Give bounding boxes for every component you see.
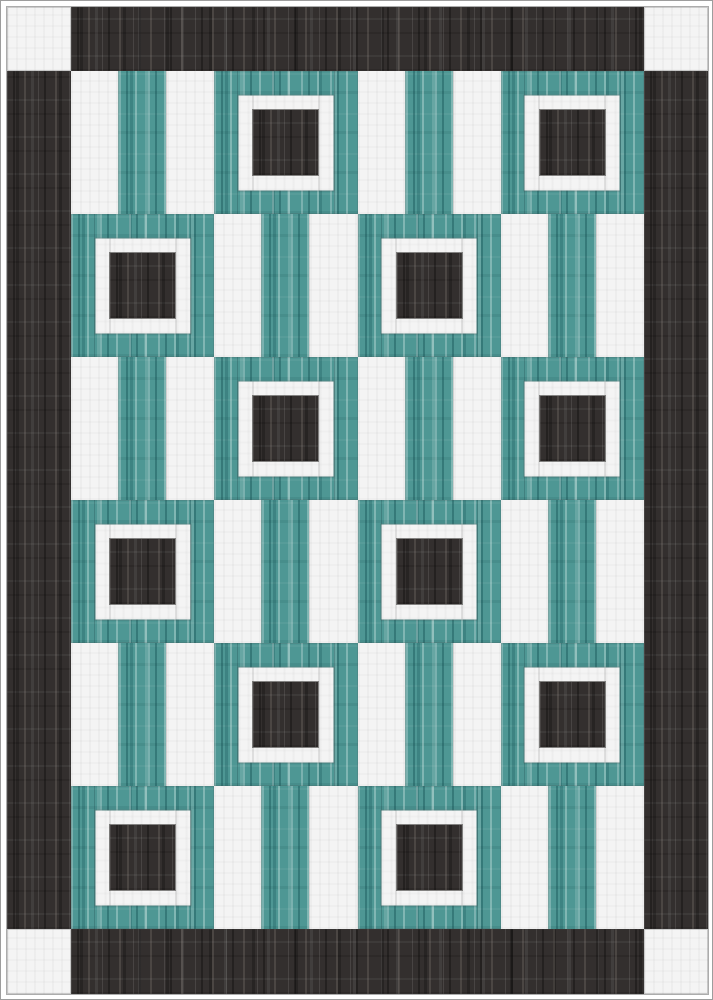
frame-center-square — [540, 110, 605, 175]
frame-square — [238, 667, 333, 762]
rail-white — [214, 214, 261, 357]
rail-white — [71, 71, 118, 214]
frame-square — [238, 95, 333, 190]
rail-white — [71, 357, 118, 500]
rail-white — [596, 214, 644, 357]
rail-block-r0-c2 — [358, 71, 501, 214]
border-strip-right — [644, 71, 708, 929]
rail-white — [166, 643, 214, 786]
frame-center-square — [253, 682, 318, 747]
frame-block-r0-c3 — [501, 71, 644, 214]
frame-square — [382, 238, 477, 333]
corner-square-top-left — [7, 7, 71, 71]
rail-teal — [548, 500, 596, 643]
frame-square — [238, 381, 333, 476]
frame-center-square — [253, 396, 318, 461]
frame-center-square — [110, 825, 175, 890]
rail-white — [501, 786, 548, 929]
frame-center-square — [397, 539, 462, 604]
rail-white — [166, 357, 214, 500]
rail-white — [453, 71, 501, 214]
frame-block-r1-c2 — [358, 214, 501, 357]
rail-white — [309, 500, 357, 643]
frame-block-r2-c3 — [501, 357, 644, 500]
frame-square — [525, 381, 620, 476]
corner-square-top-right — [644, 7, 708, 71]
rail-teal — [405, 643, 453, 786]
rail-white — [214, 500, 261, 643]
rail-block-r3-c3 — [501, 500, 644, 643]
rail-white — [71, 643, 118, 786]
frame-block-r3-c0 — [71, 500, 214, 643]
rail-white — [501, 214, 548, 357]
frame-center-square — [397, 253, 462, 318]
rail-white — [453, 643, 501, 786]
frame-square — [95, 238, 190, 333]
rail-block-r5-c3 — [501, 786, 644, 929]
rail-white — [166, 71, 214, 214]
frame-block-r3-c2 — [358, 500, 501, 643]
rail-white — [358, 643, 405, 786]
rail-block-r4-c2 — [358, 643, 501, 786]
rail-teal — [118, 71, 166, 214]
rail-teal — [118, 357, 166, 500]
rail-teal — [405, 357, 453, 500]
rail-teal — [118, 643, 166, 786]
frame-block-r4-c1 — [214, 643, 357, 786]
rail-teal — [261, 214, 309, 357]
rail-white — [358, 357, 405, 500]
frame-block-r0-c1 — [214, 71, 357, 214]
frame-center-square — [397, 825, 462, 890]
rail-white — [501, 500, 548, 643]
rail-teal — [261, 786, 309, 929]
frame-square — [382, 810, 477, 905]
rail-block-r3-c1 — [214, 500, 357, 643]
rail-white — [309, 786, 357, 929]
rail-block-r1-c3 — [501, 214, 644, 357]
rail-block-r1-c1 — [214, 214, 357, 357]
border-strip-bottom — [71, 929, 644, 994]
rail-white — [596, 500, 644, 643]
rail-white — [309, 214, 357, 357]
frame-center-square — [110, 539, 175, 604]
corner-square-bottom-right — [644, 929, 708, 994]
rail-block-r0-c0 — [71, 71, 214, 214]
rail-block-r2-c2 — [358, 357, 501, 500]
quilt-interior — [71, 71, 644, 929]
frame-block-r1-c0 — [71, 214, 214, 357]
frame-square — [525, 667, 620, 762]
frame-block-r5-c2 — [358, 786, 501, 929]
border-strip-left — [7, 71, 71, 929]
frame-square — [382, 524, 477, 619]
rail-block-r2-c0 — [71, 357, 214, 500]
rail-white — [358, 71, 405, 214]
rail-block-r5-c1 — [214, 786, 357, 929]
frame-block-r4-c3 — [501, 643, 644, 786]
frame-center-square — [540, 396, 605, 461]
frame-center-square — [110, 253, 175, 318]
rail-teal — [261, 500, 309, 643]
rail-white — [214, 786, 261, 929]
rail-teal — [405, 71, 453, 214]
corner-square-bottom-left — [7, 929, 71, 994]
frame-center-square — [253, 110, 318, 175]
border-strip-top — [71, 7, 644, 71]
frame-center-square — [540, 682, 605, 747]
rail-teal — [548, 786, 596, 929]
frame-square — [525, 95, 620, 190]
rail-white — [596, 786, 644, 929]
rail-teal — [548, 214, 596, 357]
frame-block-r2-c1 — [214, 357, 357, 500]
rail-block-r4-c0 — [71, 643, 214, 786]
frame-square — [95, 524, 190, 619]
quilt-preview-page — [0, 0, 713, 1000]
rail-white — [453, 357, 501, 500]
frame-block-r5-c0 — [71, 786, 214, 929]
frame-square — [95, 810, 190, 905]
quilt — [7, 7, 708, 994]
